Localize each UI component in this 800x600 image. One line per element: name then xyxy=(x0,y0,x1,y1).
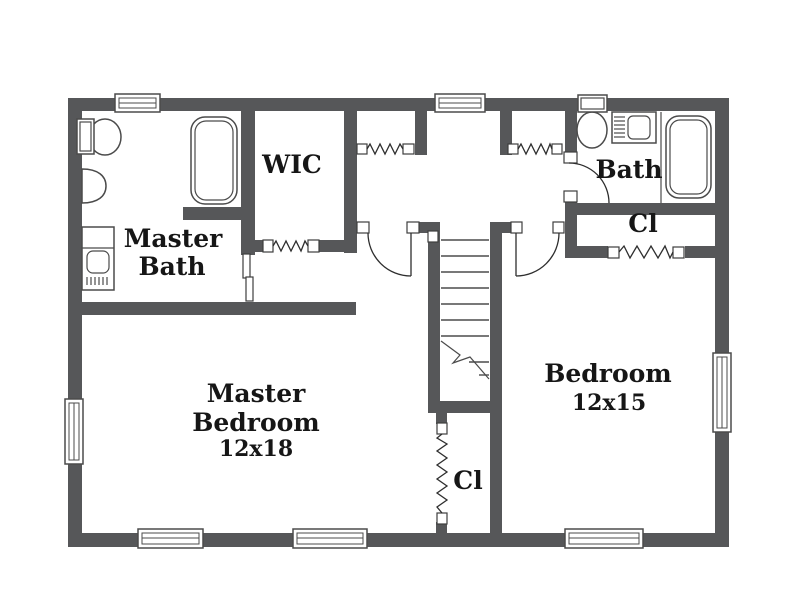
label-bedroom-dimensions: 12x15 xyxy=(572,390,646,416)
label-master-bedroom-dimensions: 12x18 xyxy=(219,436,293,462)
toilet-bowl xyxy=(577,112,607,148)
window-top-hall xyxy=(435,94,485,112)
wall-under-stair-closet-stub-top xyxy=(436,413,447,424)
label-master-bedroom-line1: Master xyxy=(207,379,306,408)
door-jamb xyxy=(553,222,564,233)
window-bottom-master-bedroom-1 xyxy=(138,529,203,548)
tub-outer xyxy=(666,116,711,198)
wall-exterior-right xyxy=(715,98,729,547)
door-jamb xyxy=(608,247,619,258)
door-bath-closet-accordion xyxy=(608,246,684,258)
label-bath-closet: Cl xyxy=(628,209,657,238)
window-bottom-bedroom xyxy=(565,529,643,548)
door-jamb xyxy=(437,423,447,434)
master-bath-bathtub xyxy=(191,117,237,204)
master-bath-toilet xyxy=(77,119,121,155)
door-hall-closet2-accordion xyxy=(508,144,562,154)
wall-stair-left xyxy=(428,222,440,413)
label-master-bedroom-line2: Bedroom xyxy=(192,408,320,437)
stair-break-line xyxy=(441,341,489,379)
accordion-zigzag xyxy=(367,144,403,154)
wall-stair-right xyxy=(490,222,502,533)
door-bedroom xyxy=(511,222,564,276)
door-jamb xyxy=(357,222,369,233)
wall-hall-closet1-right xyxy=(415,111,427,155)
pocket-door-panel xyxy=(243,254,250,278)
floor-plan: Master Bath WIC Bath Cl Bedroom 12x15 Ma… xyxy=(0,0,800,600)
accordion-zigzag xyxy=(518,144,552,154)
label-bath: Bath xyxy=(595,155,662,184)
wall-tub-surround xyxy=(183,207,241,220)
bath-bathtub xyxy=(661,112,711,203)
wall-wic-bottom-left xyxy=(241,240,263,252)
door-jamb xyxy=(511,222,522,233)
stair-newel-marker xyxy=(428,231,438,242)
sink-basin xyxy=(82,169,106,203)
wall-exterior-top xyxy=(68,98,729,111)
bath-toilet xyxy=(577,95,607,148)
tub-outer xyxy=(191,117,237,204)
wall-master-suite-south xyxy=(82,302,356,315)
window-right-bedroom xyxy=(713,353,731,432)
window-top-master-bath xyxy=(115,94,160,112)
master-bath-pedestal-sink xyxy=(82,169,106,203)
door-master-bedroom xyxy=(357,222,419,276)
accordion-zigzag xyxy=(619,246,673,258)
label-wic: WIC xyxy=(261,150,322,179)
window-left-master-bedroom xyxy=(65,399,83,464)
wall-exterior-left xyxy=(68,98,82,547)
wall-bath-left-upper xyxy=(565,111,577,153)
wall-hall-south-stub-mid xyxy=(419,222,428,233)
door-jamb xyxy=(552,144,562,154)
master-bath-vanity-sink xyxy=(82,227,114,290)
wall-stair-bottom xyxy=(428,401,490,413)
label-master-bath-line2: Bath xyxy=(138,252,205,281)
wall-hall-south-stub-left xyxy=(344,222,358,233)
door-swing-arc xyxy=(368,233,411,276)
pocket-door-panel xyxy=(246,277,253,301)
wall-bath-closet-bottom-right xyxy=(685,246,715,258)
wall-wic-bottom-right xyxy=(319,240,344,252)
door-jamb xyxy=(407,222,419,233)
door-jamb xyxy=(673,247,684,258)
door-jamb xyxy=(357,144,367,154)
door-under-stair-closet-accordion xyxy=(437,423,447,524)
door-jamb xyxy=(508,144,518,154)
door-master-bath-pocket xyxy=(243,254,253,301)
label-bedroom: Bedroom xyxy=(544,359,672,388)
door-jamb xyxy=(403,144,414,154)
door-swing-arc xyxy=(516,233,559,276)
accordion-zigzag xyxy=(437,434,447,513)
accordion-zigzag xyxy=(273,241,308,251)
floor-plan-canvas: Master Bath WIC Bath Cl Bedroom 12x15 Ma… xyxy=(0,0,800,600)
wall-bath-closet-bottom-left xyxy=(565,246,608,258)
wall-wic-left xyxy=(241,111,255,255)
window-bottom-master-bedroom-2 xyxy=(293,529,367,548)
label-under-stair-closet: Cl xyxy=(453,466,482,495)
door-jamb xyxy=(564,191,577,202)
door-jamb xyxy=(564,152,577,163)
door-jamb xyxy=(263,240,273,252)
door-wic-accordion xyxy=(263,240,319,252)
door-jamb xyxy=(308,240,319,252)
label-master-bath-line1: Master xyxy=(124,224,223,253)
bath-vanity-sink xyxy=(612,112,656,143)
door-jamb xyxy=(437,513,447,524)
door-hall-closet1-accordion xyxy=(357,144,414,154)
